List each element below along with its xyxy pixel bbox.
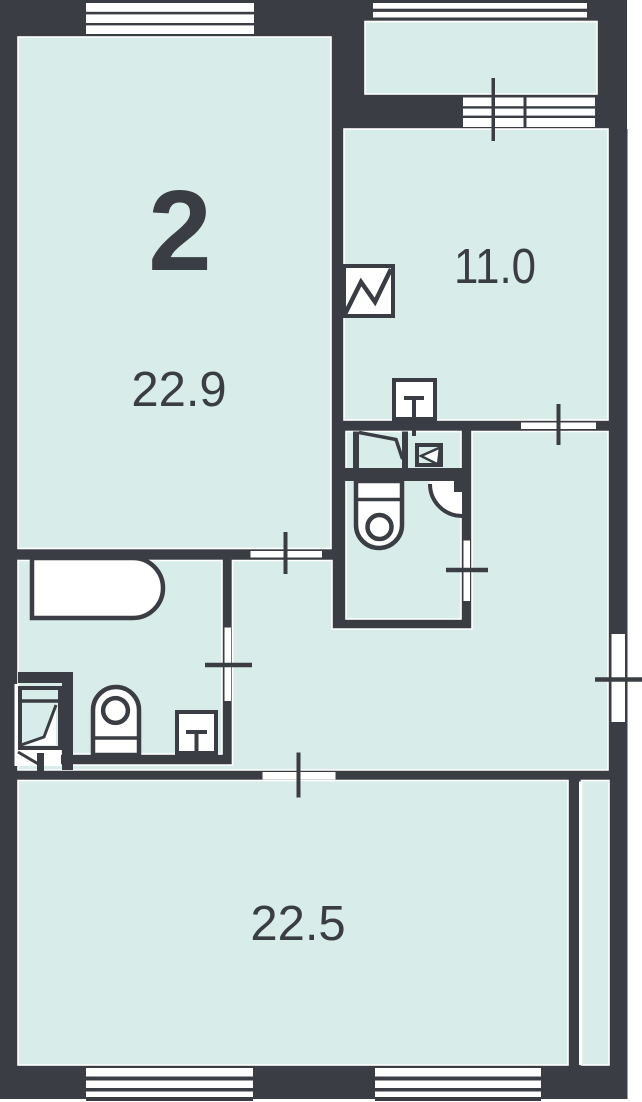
svg-text:22.5: 22.5: [250, 897, 345, 951]
svg-text:22.9: 22.9: [131, 363, 226, 417]
svg-text:2: 2: [148, 168, 211, 295]
svg-text:11.0: 11.0: [454, 240, 536, 294]
